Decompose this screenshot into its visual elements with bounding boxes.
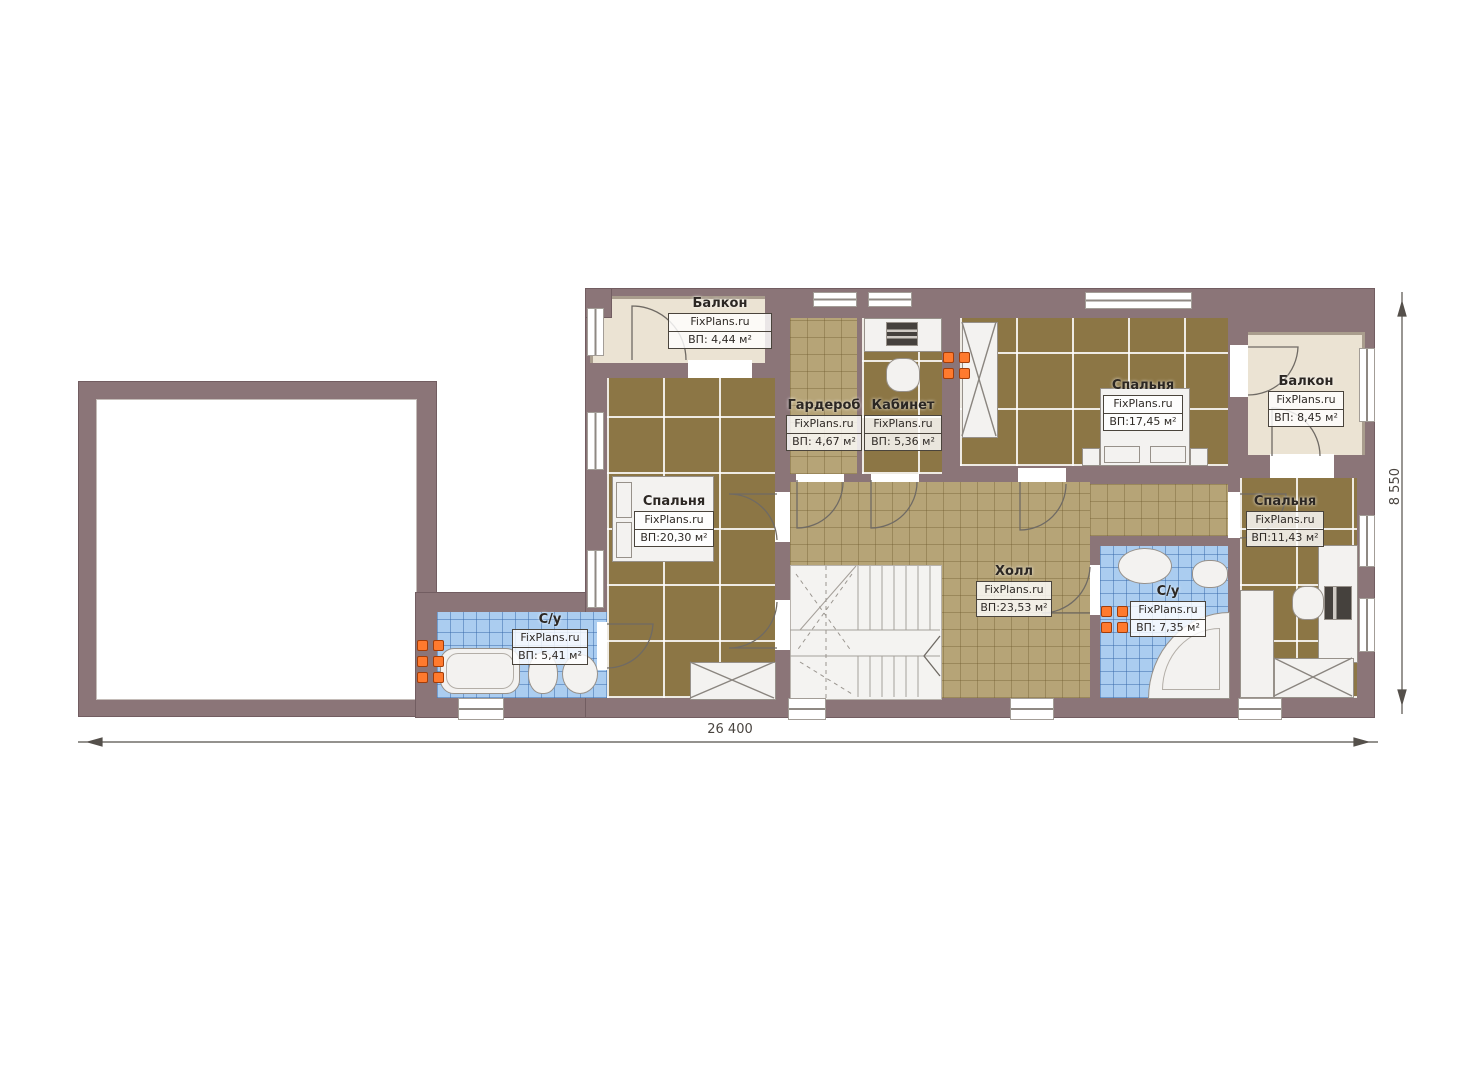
room-area: ВП: 4,44 м² bbox=[669, 331, 771, 349]
pillow-icon bbox=[616, 522, 632, 558]
room-name: Спальня bbox=[634, 494, 714, 509]
room-label-bathroom-right: С/у FixPlans.ru ВП: 7,35 м² bbox=[1130, 584, 1206, 637]
room-area: ВП: 5,36 м² bbox=[865, 433, 941, 451]
wardrobe-icon bbox=[962, 322, 998, 438]
room-name: С/у bbox=[512, 612, 588, 627]
radiator-icon bbox=[417, 640, 444, 683]
room-name: Кабинет bbox=[864, 398, 942, 413]
office-chair-icon bbox=[1292, 586, 1324, 620]
room-area: ВП: 4,67 м² bbox=[787, 433, 861, 451]
room-brand: FixPlans.ru bbox=[865, 416, 941, 433]
printer-icon bbox=[886, 322, 918, 346]
room-area: ВП:11,43 м² bbox=[1247, 529, 1323, 547]
window bbox=[1359, 348, 1375, 422]
room-brand: FixPlans.ru bbox=[513, 630, 587, 647]
door-opening bbox=[775, 492, 790, 542]
nightstand-icon bbox=[1190, 448, 1208, 466]
dimension-width-label: 26 400 bbox=[680, 722, 780, 737]
radiator-icon bbox=[1101, 606, 1128, 633]
room-brand: FixPlans.ru bbox=[1131, 602, 1205, 619]
room-name: Гардероб bbox=[786, 398, 862, 413]
computer-icon bbox=[1324, 586, 1352, 620]
room-label-balcony-right: Балкон FixPlans.ru ВП: 8,45 м² bbox=[1268, 374, 1344, 427]
radiator-icon bbox=[943, 352, 970, 379]
room-label-bathroom-left: С/у FixPlans.ru ВП: 5,41 м² bbox=[512, 612, 588, 665]
window bbox=[1085, 292, 1192, 309]
door-opening bbox=[775, 600, 790, 650]
room-area: ВП: 5,41 м² bbox=[513, 647, 587, 665]
room-brand: FixPlans.ru bbox=[1104, 396, 1182, 413]
door-opening bbox=[796, 474, 844, 482]
door-opening bbox=[597, 622, 607, 670]
room-name: Спальня bbox=[1246, 494, 1324, 509]
door-opening bbox=[1018, 468, 1066, 482]
room-brand: FixPlans.ru bbox=[977, 582, 1051, 599]
wardrobe-icon bbox=[690, 662, 776, 700]
room-area: ВП: 8,45 м² bbox=[1269, 409, 1343, 427]
pillow-icon bbox=[616, 482, 632, 518]
room-area: ВП:20,30 м² bbox=[635, 529, 713, 547]
window bbox=[1359, 515, 1375, 567]
room-name: Холл bbox=[976, 564, 1052, 579]
window bbox=[1359, 598, 1375, 652]
room-label-bedroom-left: Спальня FixPlans.ru ВП:20,30 м² bbox=[634, 494, 714, 547]
door-opening bbox=[871, 474, 919, 482]
sink-icon bbox=[1118, 548, 1172, 584]
floor-plan: Балкон FixPlans.ru ВП: 4,44 м² Гардероб … bbox=[0, 0, 1474, 1080]
room-brand: FixPlans.ru bbox=[635, 512, 713, 529]
room-area: ВП: 7,35 м² bbox=[1131, 619, 1205, 637]
door-opening bbox=[1230, 345, 1248, 397]
annex-interior bbox=[96, 399, 417, 700]
window bbox=[788, 698, 826, 720]
wardrobe-icon bbox=[1274, 658, 1354, 698]
room-name: Балкон bbox=[668, 296, 772, 311]
nightstand-icon bbox=[1082, 448, 1100, 466]
room-area: ВП:17,45 м² bbox=[1104, 413, 1182, 431]
door-opening bbox=[1090, 565, 1100, 615]
window bbox=[587, 308, 604, 356]
room-label-wardrobe: Гардероб FixPlans.ru ВП: 4,67 м² bbox=[786, 398, 862, 451]
bed-icon bbox=[1240, 590, 1274, 698]
room-name: Балкон bbox=[1268, 374, 1344, 389]
room-brand: FixPlans.ru bbox=[1247, 512, 1323, 529]
window bbox=[868, 292, 912, 307]
room-name: С/у bbox=[1130, 584, 1206, 599]
room-label-balcony-left: Балкон FixPlans.ru ВП: 4,44 м² bbox=[668, 296, 772, 349]
floor-hall-corridor bbox=[1090, 484, 1228, 536]
room-label-office: Кабинет FixPlans.ru ВП: 5,36 м² bbox=[864, 398, 942, 451]
window bbox=[813, 292, 857, 307]
window bbox=[587, 550, 604, 608]
bathtub-inner bbox=[446, 653, 514, 689]
window bbox=[1238, 698, 1282, 720]
window bbox=[587, 412, 604, 470]
room-label-bedroom-right: Спальня FixPlans.ru ВП:11,43 м² bbox=[1246, 494, 1324, 547]
room-brand: FixPlans.ru bbox=[787, 416, 861, 433]
window bbox=[1010, 698, 1054, 720]
room-name: Спальня bbox=[1103, 378, 1183, 393]
room-brand: FixPlans.ru bbox=[669, 314, 771, 331]
room-brand: FixPlans.ru bbox=[1269, 392, 1343, 409]
room-label-hall: Холл FixPlans.ru ВП:23,53 м² bbox=[976, 564, 1052, 617]
pillow-icon bbox=[1104, 446, 1140, 463]
staircase bbox=[790, 565, 942, 700]
room-area: ВП:23,53 м² bbox=[977, 599, 1051, 617]
window bbox=[458, 698, 504, 720]
pillow-icon bbox=[1150, 446, 1186, 463]
office-chair-icon bbox=[886, 358, 920, 392]
room-label-bedroom-top: Спальня FixPlans.ru ВП:17,45 м² bbox=[1103, 378, 1183, 431]
dimension-height-label: 8 550 bbox=[1388, 468, 1403, 505]
door-opening bbox=[688, 360, 752, 378]
door-opening bbox=[1228, 492, 1240, 538]
door-opening bbox=[1270, 454, 1334, 478]
